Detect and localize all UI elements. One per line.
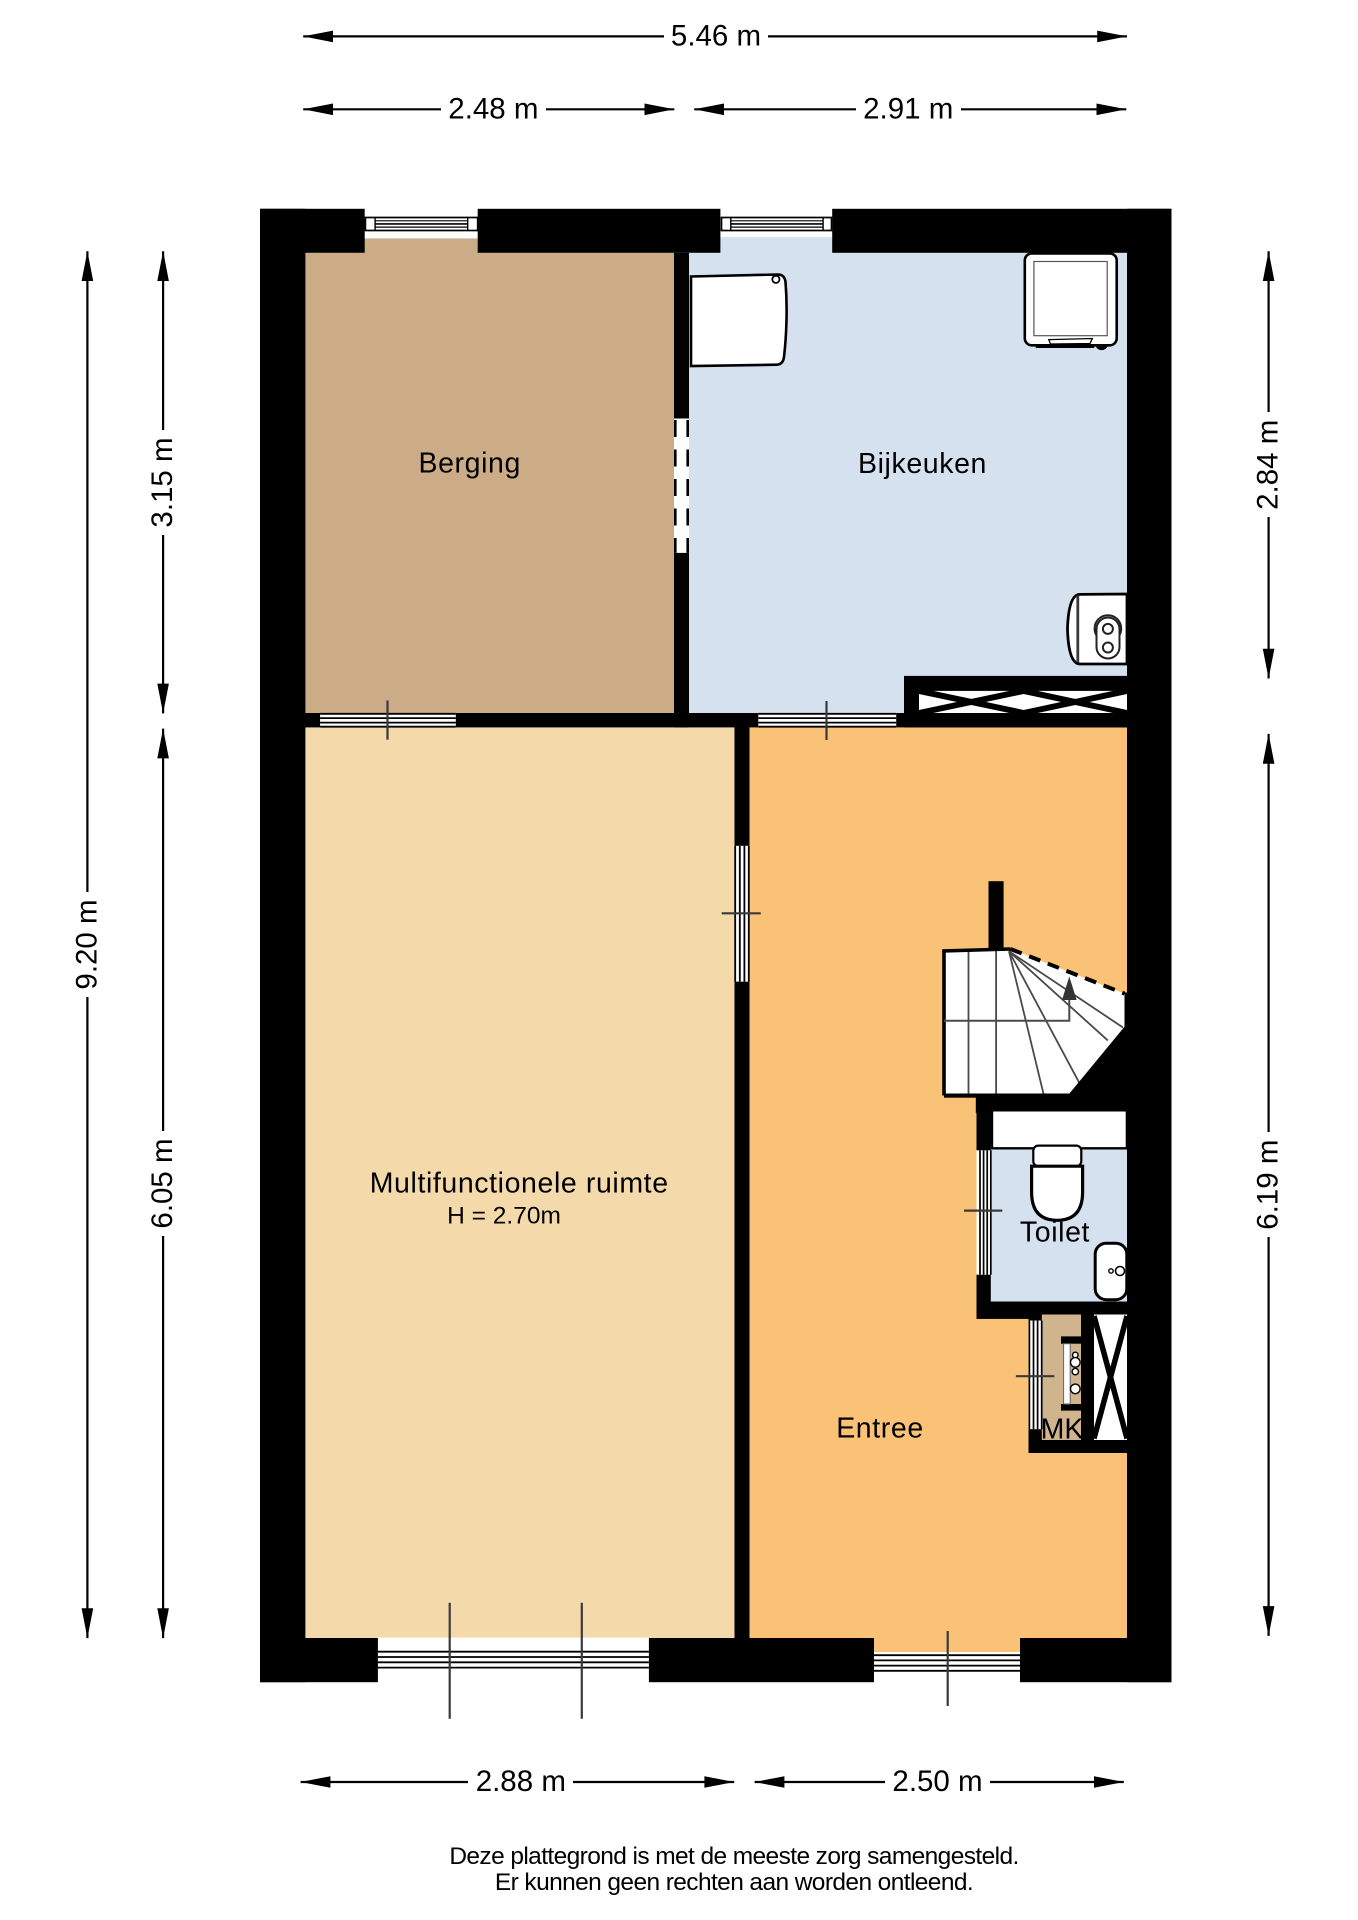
- svg-text:2.91 m: 2.91 m: [863, 92, 953, 125]
- svg-text:Berging: Berging: [418, 448, 520, 480]
- svg-text:6.19 m: 6.19 m: [1252, 1140, 1285, 1230]
- svg-text:2.84 m: 2.84 m: [1252, 420, 1285, 510]
- svg-text:Multifunctionele ruimte: Multifunctionele ruimte: [370, 1168, 669, 1200]
- svg-text:9.20 m: 9.20 m: [71, 899, 104, 989]
- svg-text:Bijkeuken: Bijkeuken: [858, 448, 987, 480]
- svg-text:5.46 m: 5.46 m: [671, 20, 761, 53]
- svg-text:6.05 m: 6.05 m: [146, 1138, 179, 1228]
- svg-text:Toilet: Toilet: [1020, 1217, 1090, 1249]
- svg-text:2.88 m: 2.88 m: [476, 1765, 566, 1798]
- svg-text:Er kunnen geen rechten aan wor: Er kunnen geen rechten aan worden ontlee…: [495, 1869, 973, 1896]
- svg-text:2.48 m: 2.48 m: [448, 92, 538, 125]
- svg-text:H = 2.70m: H = 2.70m: [447, 1202, 561, 1229]
- svg-text:3.15 m: 3.15 m: [146, 437, 179, 527]
- svg-text:Deze plattegrond is met de mee: Deze plattegrond is met de meeste zorg s…: [449, 1843, 1018, 1870]
- svg-text:2.50 m: 2.50 m: [892, 1765, 982, 1798]
- svg-text:Entree: Entree: [836, 1413, 924, 1445]
